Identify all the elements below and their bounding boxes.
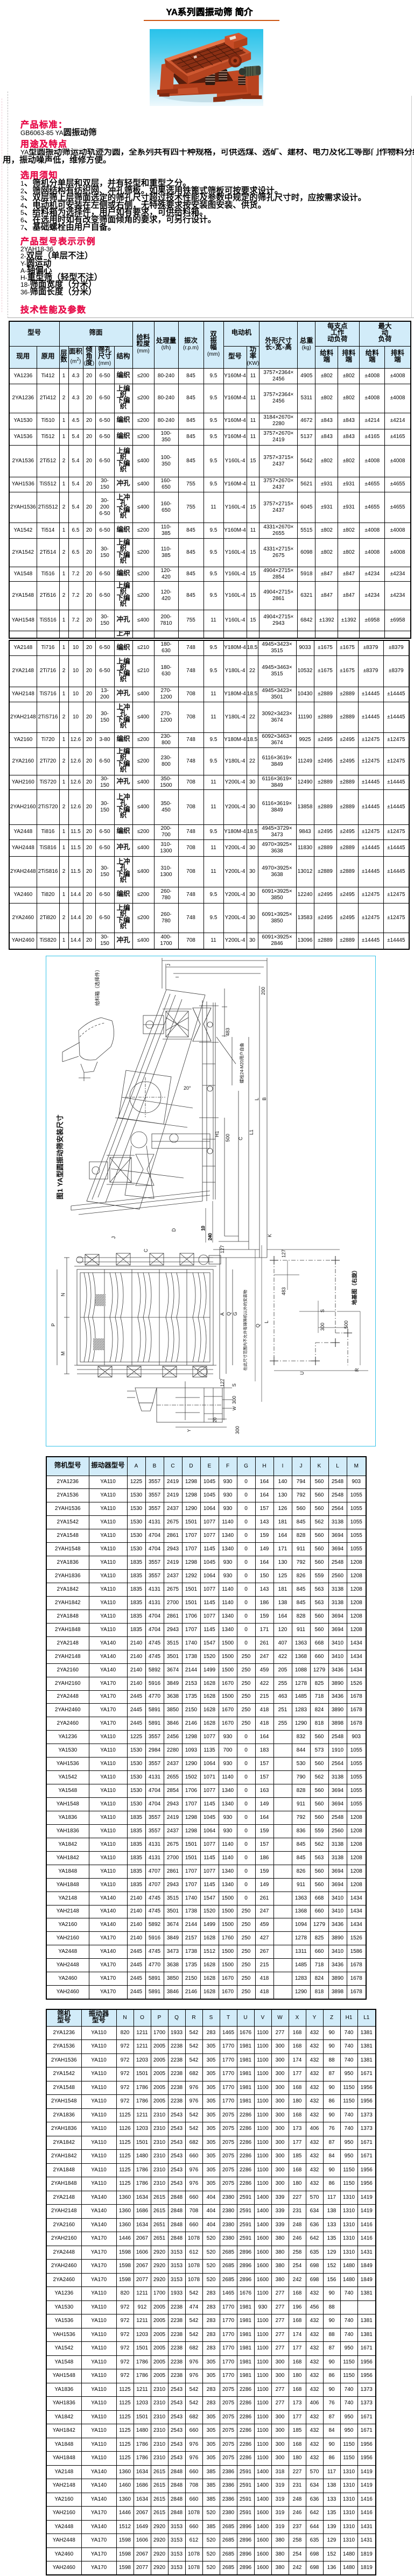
svg-text:R: R [354,1368,360,1372]
svg-text:240: 240 [208,1233,213,1240]
svg-text:A: A [220,1312,225,1316]
svg-text:483: 483 [225,1028,230,1036]
svg-text:J: J [166,964,171,966]
svg-text:螺栓24-M20用户自备: 螺栓24-M20用户自备 [239,1043,244,1083]
svg-text:S: S [231,1384,237,1387]
svg-text:127: 127 [281,1250,286,1258]
svg-text:20°: 20° [184,1085,191,1091]
svg-text:10: 10 [201,1226,206,1231]
svg-text:C: C [143,1248,149,1252]
svg-text:P: P [51,1323,56,1326]
svg-text:H1: H1 [214,1131,220,1137]
svg-text:200: 200 [261,987,266,995]
svg-text:300: 300 [235,1426,240,1434]
svg-text:D: D [171,1228,177,1232]
svg-text:L: L [254,1098,259,1100]
svg-text:L: L [264,1321,269,1323]
svg-text:W: W [232,1406,237,1410]
svg-text:127: 127 [220,1379,225,1387]
svg-text:M: M [60,1352,66,1356]
svg-text:K: K [267,1234,272,1237]
svg-text:483: 483 [281,1287,286,1295]
svg-text:在此尺寸范围内不允许有碍筛机以外的安装物: 在此尺寸范围内不允许有碍筛机以外的安装物 [242,1290,248,1371]
svg-text:500: 500 [225,1134,230,1142]
svg-text:Q: Q [255,1324,261,1328]
svg-text:给料箱（选择件）: 给料箱（选择件） [94,967,100,1006]
svg-text:127: 127 [220,1245,225,1253]
svg-text:B: B [262,1097,267,1100]
svg-text:N: N [60,1293,66,1297]
svg-text:300: 300 [231,1396,237,1404]
svg-text:20: 20 [213,1417,217,1422]
svg-text:C: C [238,1137,243,1140]
svg-text:地基图（右旋）: 地基图（右旋） [351,1267,358,1305]
svg-text:U: U [299,1372,305,1375]
svg-text:I: I [175,977,180,978]
svg-text:Y: Y [187,1429,192,1432]
svg-text:500: 500 [343,1321,349,1329]
svg-text:图1 YA型圆振动筛安装尺寸: 图1 YA型圆振动筛安装尺寸 [56,1114,64,1199]
svg-text:G: G [233,1312,238,1316]
svg-text:Q: Q [226,1312,231,1316]
svg-text:300: 300 [320,1323,325,1331]
svg-text:L1: L1 [249,1130,254,1135]
svg-text:S: S [320,1309,325,1312]
svg-text:J: J [111,1237,116,1239]
